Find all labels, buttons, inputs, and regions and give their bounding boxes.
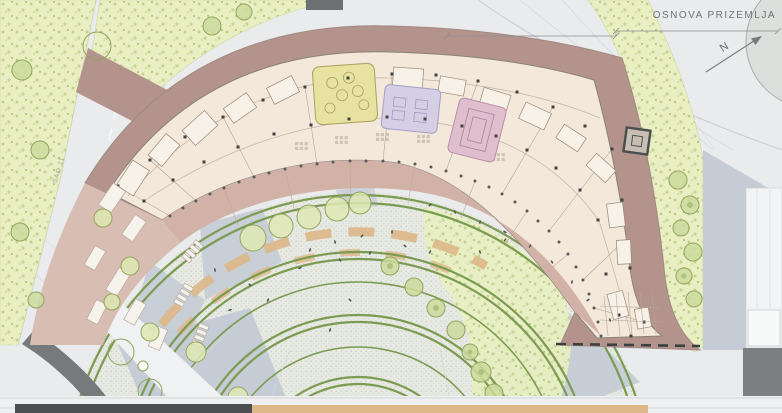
tree xyxy=(236,4,252,20)
bottom-accent-strip xyxy=(252,405,648,413)
tree xyxy=(240,225,266,251)
tree xyxy=(405,278,423,296)
tree xyxy=(28,292,44,308)
tree xyxy=(325,197,349,221)
tree xyxy=(269,214,293,238)
kiosk-structure xyxy=(623,127,650,154)
tree xyxy=(104,294,120,310)
room-lavender xyxy=(381,84,441,134)
tree xyxy=(447,321,465,339)
tree xyxy=(31,141,49,159)
parking-stall xyxy=(748,310,780,346)
corner-block xyxy=(743,348,782,398)
tree xyxy=(673,220,689,236)
tree xyxy=(141,323,159,341)
tree xyxy=(669,171,687,189)
tree xyxy=(686,291,702,307)
site-plan-page: OSNOVA PRIZEMLJA N SAO 11 xyxy=(0,0,782,413)
tree xyxy=(11,223,29,241)
service-block xyxy=(306,0,343,10)
tree xyxy=(203,17,221,35)
room-yellow xyxy=(312,63,378,125)
tree xyxy=(349,192,371,214)
bottom-asphalt-strip xyxy=(15,404,252,413)
tree xyxy=(297,205,321,229)
site-plan-canvas: OSNOVA PRIZEMLJA N SAO 11 xyxy=(0,0,782,413)
tree xyxy=(121,257,139,275)
plan-title: OSNOVA PRIZEMLJA xyxy=(653,10,776,21)
tree xyxy=(186,342,206,362)
tree xyxy=(138,361,148,371)
parking-area xyxy=(703,150,782,350)
tree xyxy=(684,243,702,261)
tree xyxy=(94,209,112,227)
tree xyxy=(12,60,32,80)
